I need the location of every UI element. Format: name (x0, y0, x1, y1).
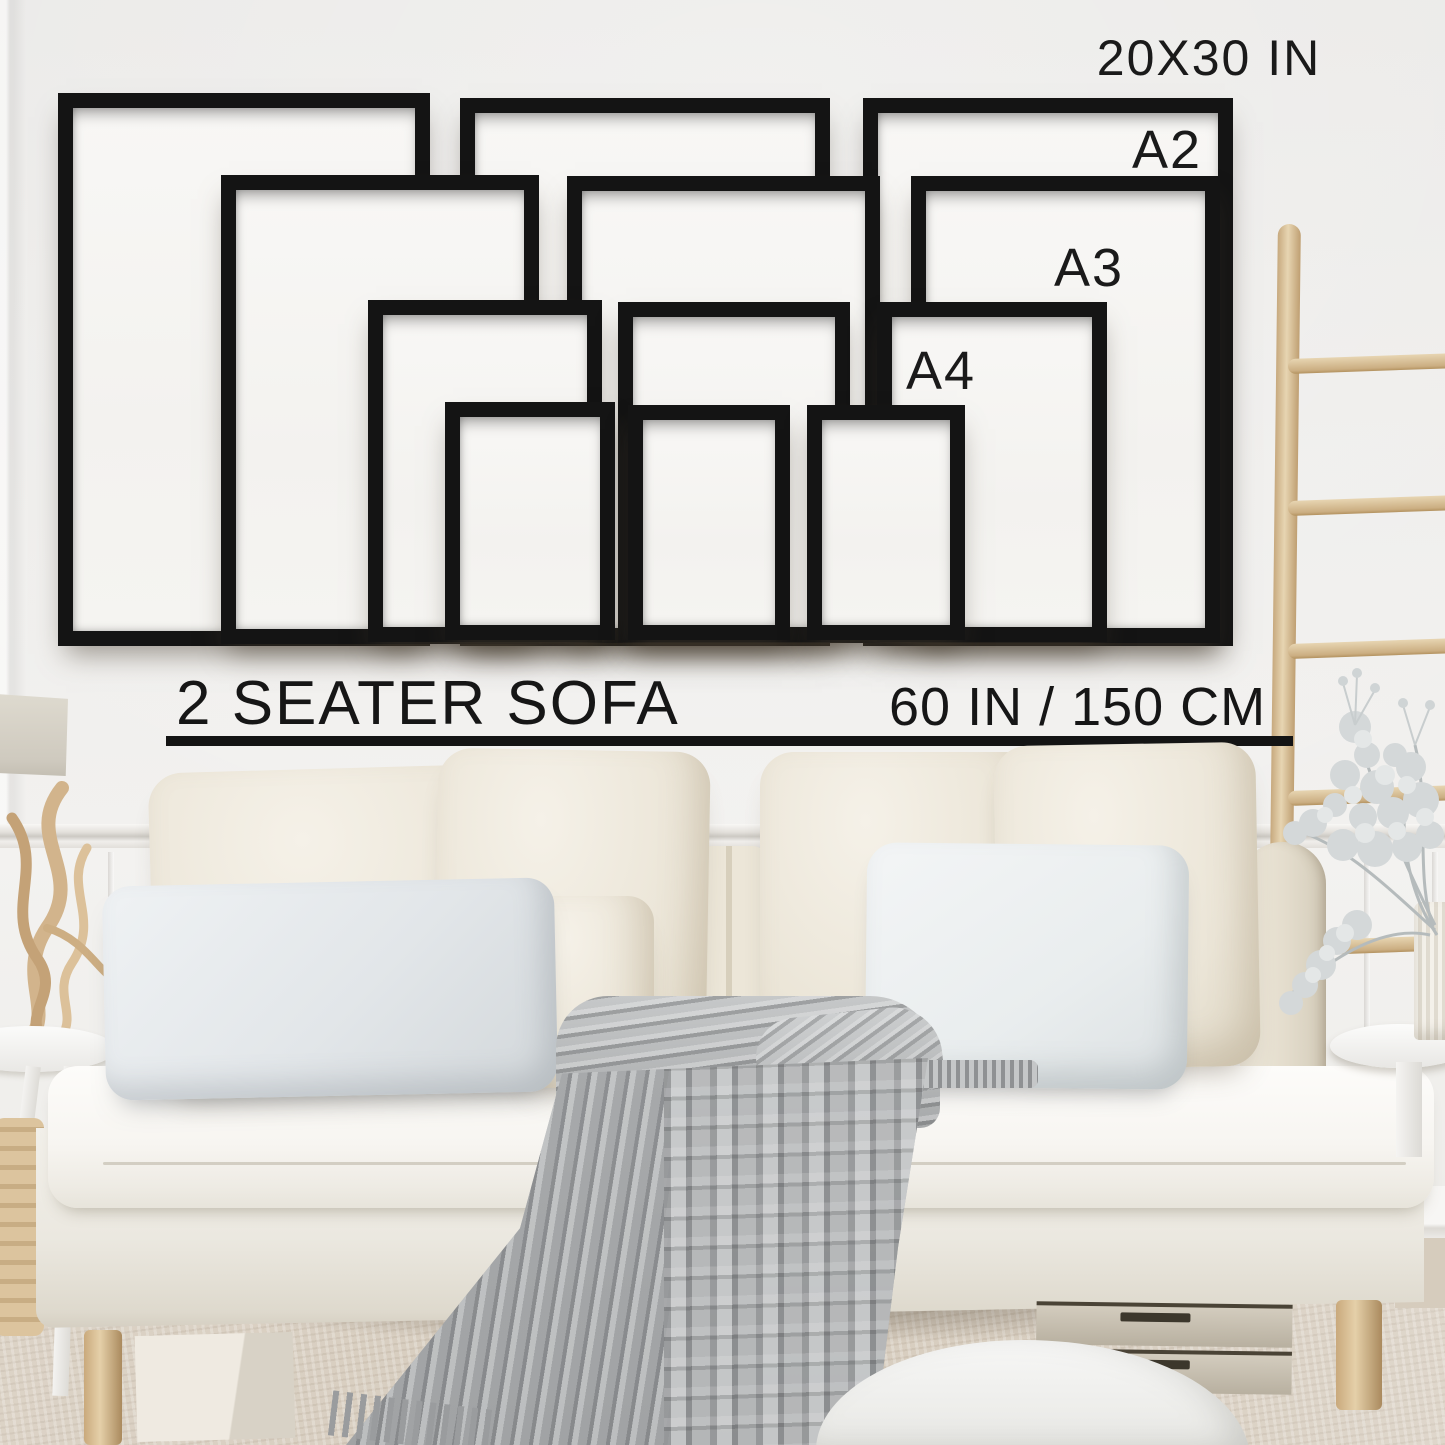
lamp-shade (0, 694, 68, 776)
size-guide-image: 20X30 INA2A3A4 2 SEATER SOFA 60 IN / 150… (0, 0, 1445, 1445)
sofa-leg-right (1336, 1300, 1382, 1410)
sofa-scale-label: 2 SEATER SOFA (176, 668, 680, 739)
size-frame-a4-right (807, 405, 965, 640)
side-table-right-leg (1396, 1062, 1422, 1157)
size-label-a4: A4 (906, 340, 976, 402)
lumbar-pillow-gray (102, 877, 558, 1100)
storage-box-left (135, 1332, 296, 1442)
size-label-a3: A3 (1054, 237, 1124, 299)
sofa-width-label: 60 IN / 150 CM (889, 676, 1266, 738)
sofa-leg-left (84, 1330, 122, 1445)
size-label-a2: A2 (1132, 119, 1202, 181)
size-frame-a4-center (628, 405, 790, 640)
size-frame-a4-left (445, 402, 615, 640)
size-label-20x30-in: 20X30 IN (1097, 29, 1321, 87)
plant-branches (1225, 635, 1445, 1055)
